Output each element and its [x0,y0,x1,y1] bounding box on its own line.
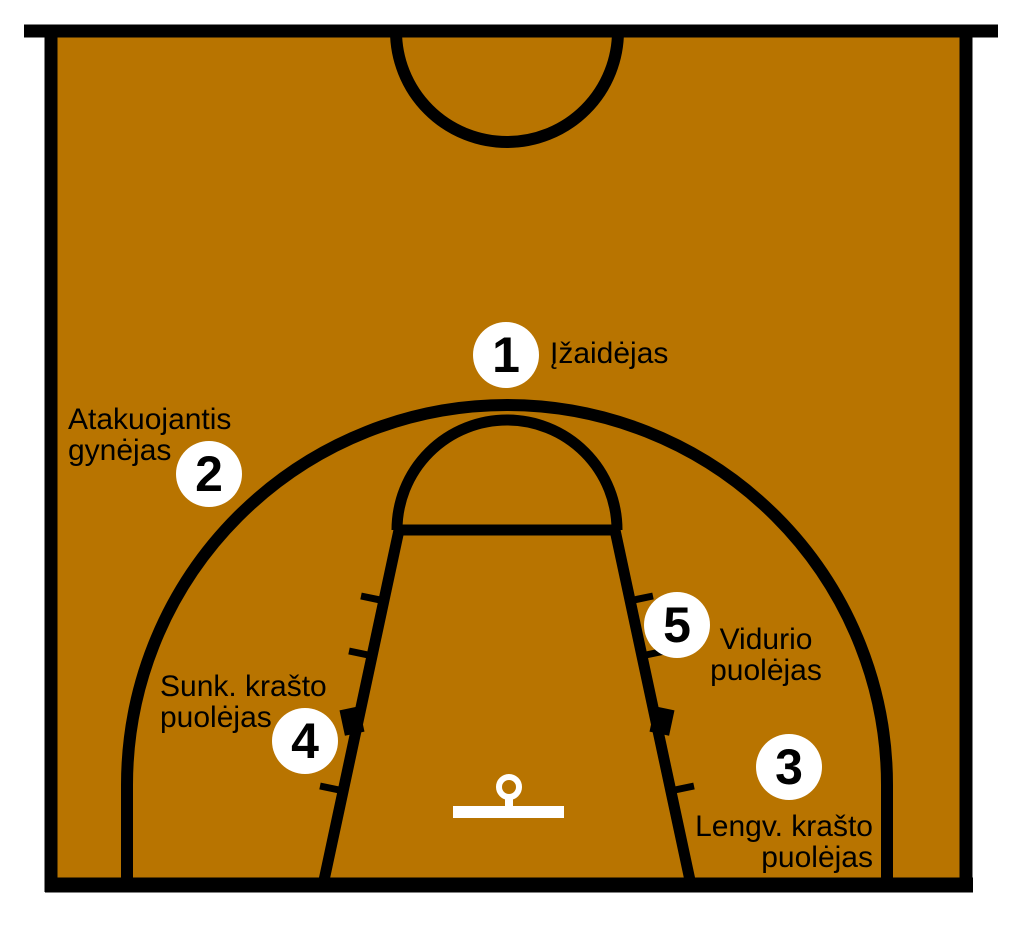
lane-hash-right-1 [629,596,653,601]
player-3-label-line2: puolėjas [653,842,873,873]
player-5-label: Vidurio puolėjas [686,624,846,686]
player-1-label-text: Įžaidėjas [550,337,668,370]
lane-hash-left-1 [361,596,385,601]
player-5-label-line2: puolėjas [686,655,846,686]
backboard [453,806,564,818]
player-3-number: 3 [775,734,803,800]
basket-stem [505,794,513,808]
player-2-label-line2: gynėjas [68,435,231,466]
player-1-marker: 1 [473,322,539,388]
lane-hash-left-3 [320,786,344,791]
player-2-label: Atakuojantis gynėjas [68,404,231,466]
player-1-label: Įžaidėjas [550,338,668,369]
player-4-label-line2: puolėjas [160,702,327,733]
lane-hash-right-3 [670,786,694,791]
player-3-label-line1: Lengv. krašto [653,811,873,842]
player-3-marker: 3 [756,734,822,800]
player-4-label: Sunk. krašto puolėjas [160,671,327,733]
player-3-label: Lengv. krašto puolėjas [653,811,873,873]
player-5-label-line1: Vidurio [686,624,846,655]
player-1-number: 1 [492,322,520,388]
player-4-label-line1: Sunk. krašto [160,671,327,702]
player-2-label-line1: Atakuojantis [68,404,231,435]
basketball-positions-diagram: 1 Įžaidėjas 2 Atakuojantis gynėjas 5 Vid… [0,0,1024,926]
lane-hash-left-2 [349,651,373,656]
